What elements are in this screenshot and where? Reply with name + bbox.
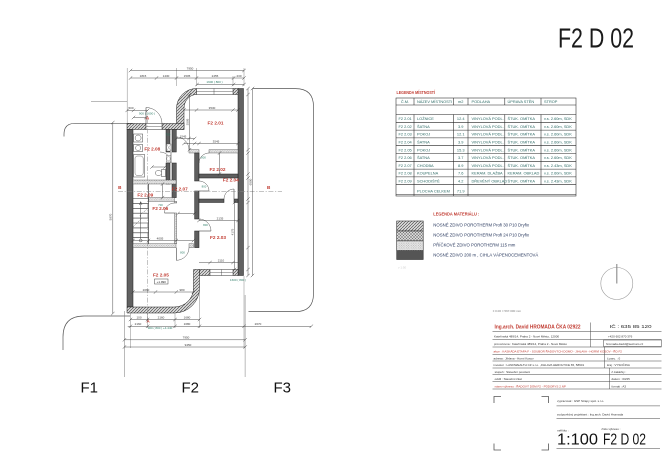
svg-text:800: 800 bbox=[203, 223, 208, 227]
svg-text:číslo výkresu :: číslo výkresu : bbox=[602, 427, 621, 431]
svg-text:vypracoval : GSP Strapy spol.: vypracoval : GSP Strapy spol. s.r.o. bbox=[557, 399, 604, 403]
svg-text:kraj : VYSOČINA: kraj : VYSOČINA bbox=[607, 362, 630, 367]
svg-text:datum : 03/25: datum : 03/25 bbox=[612, 377, 631, 381]
svg-text:F2 D 02: F2 D 02 bbox=[603, 432, 646, 449]
svg-text:F3: F3 bbox=[274, 380, 292, 397]
svg-text:PLOCHA CELKEM: PLOCHA CELKEM bbox=[417, 188, 450, 193]
svg-text:ŠATNA: ŠATNA bbox=[417, 140, 430, 145]
svg-text:Ing.arch. David HROMADA ČKA 02: Ing.arch. David HROMADA ČKA 02922 bbox=[495, 324, 581, 331]
svg-text:3595: 3595 bbox=[185, 118, 189, 125]
svg-text:700: 700 bbox=[166, 133, 171, 137]
svg-text:v.s. 2.43m, SDK: v.s. 2.43m, SDK bbox=[544, 179, 572, 184]
svg-text:800: 800 bbox=[180, 251, 185, 255]
svg-text:akce : KASKÁDA ETAPA F - SOU: akce : KASKÁDA ETAPA F - SOUBOR ŘADOVÝCH… bbox=[494, 349, 623, 354]
svg-text:2135: 2135 bbox=[217, 216, 224, 220]
svg-text:v.s. 2.60m, SDK: v.s. 2.60m, SDK bbox=[544, 116, 572, 121]
svg-text:3.7: 3.7 bbox=[458, 155, 463, 160]
svg-text:v.s. 2.60m, SDK: v.s. 2.60m, SDK bbox=[544, 171, 572, 176]
svg-text:F2 2.04: F2 2.04 bbox=[399, 140, 413, 145]
svg-text:POKOJ: POKOJ bbox=[417, 132, 430, 137]
svg-text:F2 2.07: F2 2.07 bbox=[399, 163, 412, 168]
svg-text:F2 2.04: F2 2.04 bbox=[223, 177, 239, 182]
svg-text:VINYLOVÁ PODL.: VINYLOVÁ PODL. bbox=[472, 140, 504, 145]
svg-text:F2 2.02: F2 2.02 bbox=[210, 167, 226, 172]
svg-text:ŠATNA: ŠATNA bbox=[417, 155, 430, 160]
svg-text:900 ( 1600 ): 900 ( 1600 ) bbox=[139, 112, 155, 116]
svg-text:+1.990: +1.990 bbox=[157, 280, 167, 284]
svg-text:1:100: 1:100 bbox=[557, 432, 598, 449]
svg-text:1600 ( 800 ): 1600 ( 800 ) bbox=[230, 278, 246, 282]
svg-text:ŠTUK. OMÍTKA: ŠTUK. OMÍTKA bbox=[508, 140, 536, 145]
svg-text:2160: 2160 bbox=[158, 315, 165, 319]
svg-text:71.9: 71.9 bbox=[457, 188, 465, 193]
svg-text:F2 2.09: F2 2.09 bbox=[137, 193, 153, 198]
svg-text:provozovna : Kateřinská 489/14: provozovna : Kateřinská 489/14, Praha 2 … bbox=[494, 342, 567, 346]
svg-text:VINYLOVÁ PODL.: VINYLOVÁ PODL. bbox=[472, 116, 504, 121]
svg-text:F2 2.05: F2 2.05 bbox=[153, 273, 169, 278]
svg-text:VINYLOVÁ PODL.: VINYLOVÁ PODL. bbox=[472, 163, 504, 168]
svg-text:2060: 2060 bbox=[143, 288, 150, 292]
svg-text:v.s. 2.60m, SDK: v.s. 2.60m, SDK bbox=[544, 147, 572, 152]
svg-text:ŠTUK. OMÍTKA: ŠTUK. OMÍTKA bbox=[508, 147, 536, 152]
svg-text:PODLAHA: PODLAHA bbox=[472, 99, 491, 104]
svg-text:F2: F2 bbox=[182, 380, 200, 397]
svg-text:IČ : 635 85 120: IČ : 635 85 120 bbox=[610, 323, 653, 329]
svg-text:7950: 7950 bbox=[183, 336, 190, 340]
svg-text:± 0.00 = 567.000 mm: ± 0.00 = 567.000 mm bbox=[493, 309, 522, 313]
svg-text:NÁZEV MÍSTNOSTI: NÁZEV MÍSTNOSTI bbox=[417, 99, 452, 104]
svg-text:Kateřinská 489/14, Praha 2 - N: Kateřinská 489/14, Praha 2 - Nové Město,… bbox=[494, 335, 559, 339]
svg-text:F2 2.08: F2 2.08 bbox=[399, 171, 412, 176]
svg-text:ÚPRAVA STĚN: ÚPRAVA STĚN bbox=[508, 99, 535, 104]
svg-text:v.s. 2.43m, SDK: v.s. 2.43m, SDK bbox=[544, 163, 572, 168]
svg-text:3545: 3545 bbox=[213, 139, 220, 143]
svg-text:VINYLOVÁ PODL.: VINYLOVÁ PODL. bbox=[472, 155, 504, 160]
svg-text:4.2: 4.2 bbox=[458, 179, 463, 184]
svg-text:F2 2.02: F2 2.02 bbox=[399, 124, 412, 129]
svg-text:název výkresu : ŘADOVÝ DŮM F2: název výkresu : ŘADOVÝ DŮM F2 - PŮDORYS … bbox=[495, 383, 566, 388]
svg-text:KERAM. DLAŽBA: KERAM. DLAŽBA bbox=[472, 171, 504, 176]
svg-text:v.s. 2.60m, SDK: v.s. 2.60m, SDK bbox=[544, 132, 572, 137]
svg-text:investor : LANDWEALTH CZ s.r.o: investor : LANDWEALTH CZ s.r.o. ,JIHLAVA… bbox=[494, 363, 585, 367]
svg-text:č.parc. : 0: č.parc. : 0 bbox=[607, 356, 621, 360]
svg-text:F1: F1 bbox=[81, 380, 99, 397]
svg-text:700: 700 bbox=[158, 203, 163, 207]
svg-text:15.3: 15.3 bbox=[457, 147, 465, 152]
svg-text:12.1: 12.1 bbox=[457, 132, 465, 137]
svg-text:7950: 7950 bbox=[187, 66, 194, 70]
svg-text:100: 100 bbox=[136, 315, 141, 319]
svg-text:LOŽNICE: LOŽNICE bbox=[417, 116, 434, 121]
svg-text:VINYLOVÁ PODL.: VINYLOVÁ PODL. bbox=[472, 147, 504, 152]
svg-text:KOUPELNA: KOUPELNA bbox=[417, 171, 439, 176]
svg-text:NOSNÉ ZDIVO POROTHERM Profi 30: NOSNÉ ZDIVO POROTHERM Profi 30 P10 Dryfi… bbox=[433, 223, 530, 228]
svg-text:ŠTUK. OMÍTKA: ŠTUK. OMÍTKA bbox=[508, 155, 536, 160]
svg-text:v 1:50: v 1:50 bbox=[398, 266, 407, 270]
svg-text:oddíl : Stavební část: oddíl : Stavební část bbox=[495, 377, 522, 381]
svg-text:F2 2.08: F2 2.08 bbox=[144, 147, 160, 152]
svg-text:ŠTUK. OMÍTKA: ŠTUK. OMÍTKA bbox=[508, 116, 536, 121]
svg-text:8.9: 8.9 bbox=[458, 163, 463, 168]
svg-text:VINYLOVÁ PODL.: VINYLOVÁ PODL. bbox=[472, 132, 504, 137]
svg-text:Č.M.: Č.M. bbox=[401, 99, 409, 104]
svg-text:F2 2.06: F2 2.06 bbox=[399, 155, 412, 160]
svg-text:v.s. 2.60m, SDK: v.s. 2.60m, SDK bbox=[544, 140, 572, 145]
svg-text:1680: 1680 bbox=[184, 315, 191, 319]
svg-text:2670: 2670 bbox=[255, 322, 262, 326]
svg-text:CHODBA: CHODBA bbox=[417, 163, 434, 168]
svg-text:PŘÍČKOVÉ ZDIVO POROTHERM 115 m: PŘÍČKOVÉ ZDIVO POROTHERM 115 mm bbox=[433, 242, 515, 247]
svg-text:v.s. 2.60m, SDK: v.s. 2.60m, SDK bbox=[544, 155, 572, 160]
svg-text:5970: 5970 bbox=[109, 213, 113, 220]
svg-text:KERAM. OBKLAD: KERAM. OBKLAD bbox=[508, 171, 540, 176]
svg-text:1430: 1430 bbox=[163, 74, 170, 78]
svg-text:ŠTUK. OMÍTKA: ŠTUK. OMÍTKA bbox=[508, 132, 536, 137]
svg-text:1545: 1545 bbox=[180, 134, 187, 138]
svg-text:6500: 6500 bbox=[248, 178, 252, 185]
svg-text:adresa : Jihlava - Horní Kosov: adresa : Jihlava - Horní Kosov bbox=[494, 356, 535, 360]
svg-text:F2 2.03: F2 2.03 bbox=[210, 235, 226, 240]
svg-text:stupeň : Stavební povolení: stupeň : Stavební povolení bbox=[495, 370, 531, 374]
svg-text:1680: 1680 bbox=[184, 322, 191, 326]
svg-text:1505: 1505 bbox=[184, 74, 191, 78]
svg-text:SCHODIŠTĚ: SCHODIŠTĚ bbox=[417, 179, 440, 184]
svg-text:12.4: 12.4 bbox=[457, 116, 465, 121]
svg-text:ŠTUK. OMÍTKA: ŠTUK. OMÍTKA bbox=[508, 163, 536, 168]
svg-text:4175: 4175 bbox=[230, 228, 234, 235]
svg-text:NOSNÉ ZDIVO 200 m , CIHLA VÁPE: NOSNÉ ZDIVO 200 m , CIHLA VÁPENOCEMENTOV… bbox=[433, 253, 538, 258]
svg-text:č.zakázky :: č.zakázky : bbox=[612, 370, 627, 374]
svg-text:+420 602 870 376: +420 602 870 376 bbox=[608, 335, 633, 339]
svg-text:3530: 3530 bbox=[209, 106, 216, 110]
svg-text:zodpovědný projektant : Ing.a: zodpovědný projektant : Ing.arch. David … bbox=[557, 413, 623, 417]
svg-text:2110: 2110 bbox=[218, 258, 225, 262]
svg-text:9450: 9450 bbox=[185, 343, 192, 347]
svg-text:v.s. 2.60m, SDK: v.s. 2.60m, SDK bbox=[544, 124, 572, 129]
svg-text:F2 D 02: F2 D 02 bbox=[558, 23, 634, 54]
svg-text:1815: 1815 bbox=[140, 74, 147, 78]
svg-text:2160: 2160 bbox=[135, 322, 142, 326]
svg-text:LEGENDA MATERIÁLU :: LEGENDA MATERIÁLU : bbox=[433, 211, 479, 216]
svg-text:3.9: 3.9 bbox=[458, 140, 463, 145]
svg-text:F2 2.01: F2 2.01 bbox=[399, 116, 412, 121]
svg-text:1600 ( 800 ): 1600 ( 800 ) bbox=[206, 80, 222, 84]
svg-text:800: 800 bbox=[201, 156, 206, 160]
svg-text:NOSNÉ ZDIVO POROTHERM Profi 24: NOSNÉ ZDIVO POROTHERM Profi 24 P10 Dryfi… bbox=[433, 233, 530, 238]
svg-text:4005: 4005 bbox=[157, 236, 164, 240]
svg-text:DŘEVĚNÝ OBKLAD: DŘEVĚNÝ OBKLAD bbox=[472, 179, 508, 184]
svg-text:ŠATNA: ŠATNA bbox=[417, 124, 430, 129]
svg-text:F2 2.05: F2 2.05 bbox=[399, 147, 412, 152]
svg-text:F2 2.09: F2 2.09 bbox=[399, 179, 412, 184]
svg-text:980: 980 bbox=[179, 288, 184, 292]
svg-text:F2 2.07: F2 2.07 bbox=[172, 187, 188, 192]
svg-text:3.9: 3.9 bbox=[458, 124, 463, 129]
svg-text:500: 500 bbox=[128, 106, 133, 110]
svg-text:hromada.david@seznam.cz: hromada.david@seznam.cz bbox=[606, 342, 644, 346]
svg-text:F2 2.03: F2 2.03 bbox=[399, 132, 412, 137]
svg-text:m2: m2 bbox=[458, 99, 463, 104]
svg-text:800: 800 bbox=[202, 185, 207, 189]
svg-text:formát : A3: formát : A3 bbox=[612, 384, 627, 388]
svg-text:ŠTUK. OMÍTKA: ŠTUK. OMÍTKA bbox=[508, 179, 536, 184]
svg-text:230: 230 bbox=[236, 74, 241, 78]
svg-text:ŠTUK. OMÍTKA: ŠTUK. OMÍTKA bbox=[508, 124, 536, 129]
svg-text:VINYLOVÁ PODL.: VINYLOVÁ PODL. bbox=[472, 124, 504, 129]
svg-text:F2 2.01: F2 2.01 bbox=[208, 120, 224, 125]
svg-text:2455: 2455 bbox=[212, 74, 219, 78]
svg-text:7.6: 7.6 bbox=[458, 171, 463, 176]
svg-text:STROP: STROP bbox=[544, 99, 558, 104]
svg-text:POKOJ: POKOJ bbox=[417, 147, 430, 152]
